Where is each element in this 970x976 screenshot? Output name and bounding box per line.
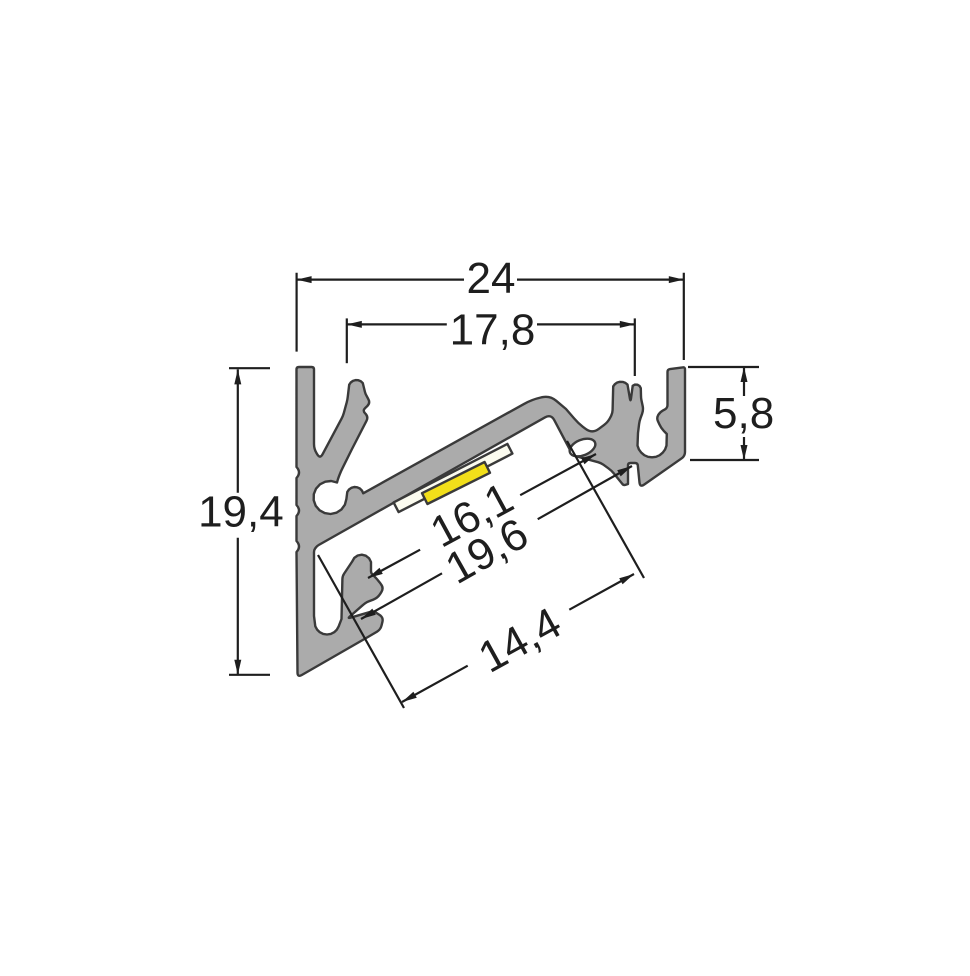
svg-text:19,4: 19,4 [198, 488, 284, 537]
svg-text:5,8: 5,8 [713, 389, 774, 438]
svg-text:17,8: 17,8 [450, 306, 536, 355]
svg-text:24: 24 [467, 254, 516, 303]
